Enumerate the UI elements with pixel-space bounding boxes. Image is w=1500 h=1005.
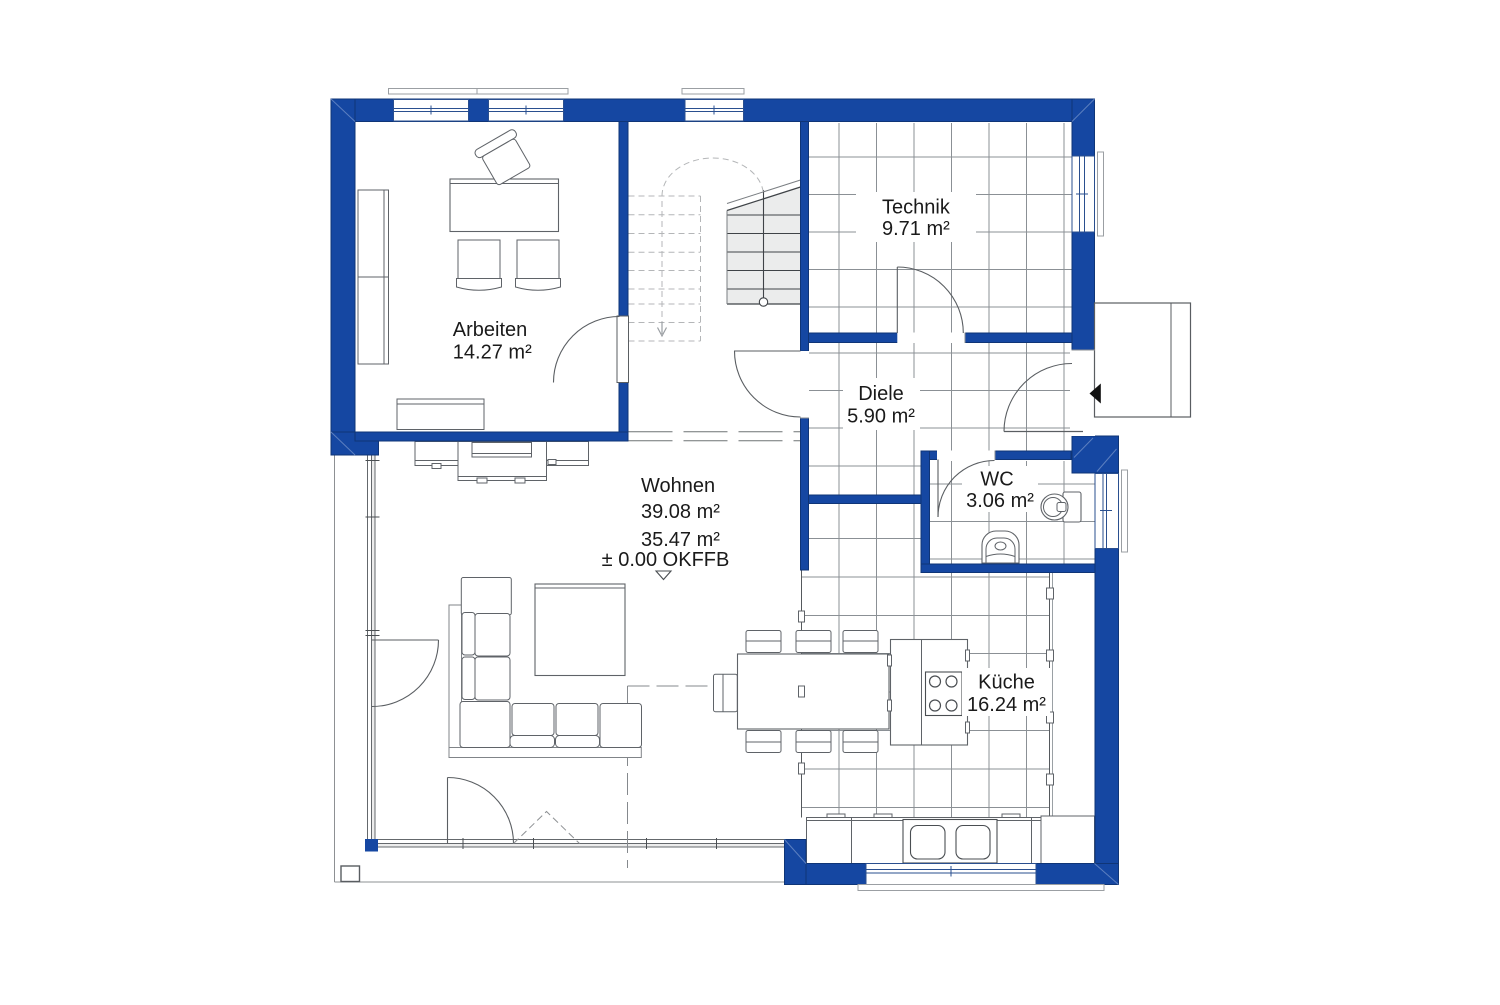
svg-text:Diele: Diele [858,383,904,405]
svg-text:14.27 m²: 14.27 m² [453,342,532,364]
svg-text:9.71 m²: 9.71 m² [882,218,950,240]
svg-text:Technik: Technik [882,197,951,219]
svg-text:39.08 m²: 39.08 m² [641,501,720,523]
svg-text:16.24 m²: 16.24 m² [967,694,1046,716]
svg-text:5.90 m²: 5.90 m² [847,405,915,427]
svg-text:Küche: Küche [978,671,1035,693]
svg-text:Wohnen: Wohnen [641,475,715,497]
svg-text:3.06 m²: 3.06 m² [966,490,1034,512]
svg-text:Arbeiten: Arbeiten [453,319,528,341]
svg-text:± 0.00 OKFFB: ± 0.00 OKFFB [602,549,730,571]
svg-text:35.47 m²: 35.47 m² [641,529,720,551]
svg-text:WC: WC [980,469,1013,491]
